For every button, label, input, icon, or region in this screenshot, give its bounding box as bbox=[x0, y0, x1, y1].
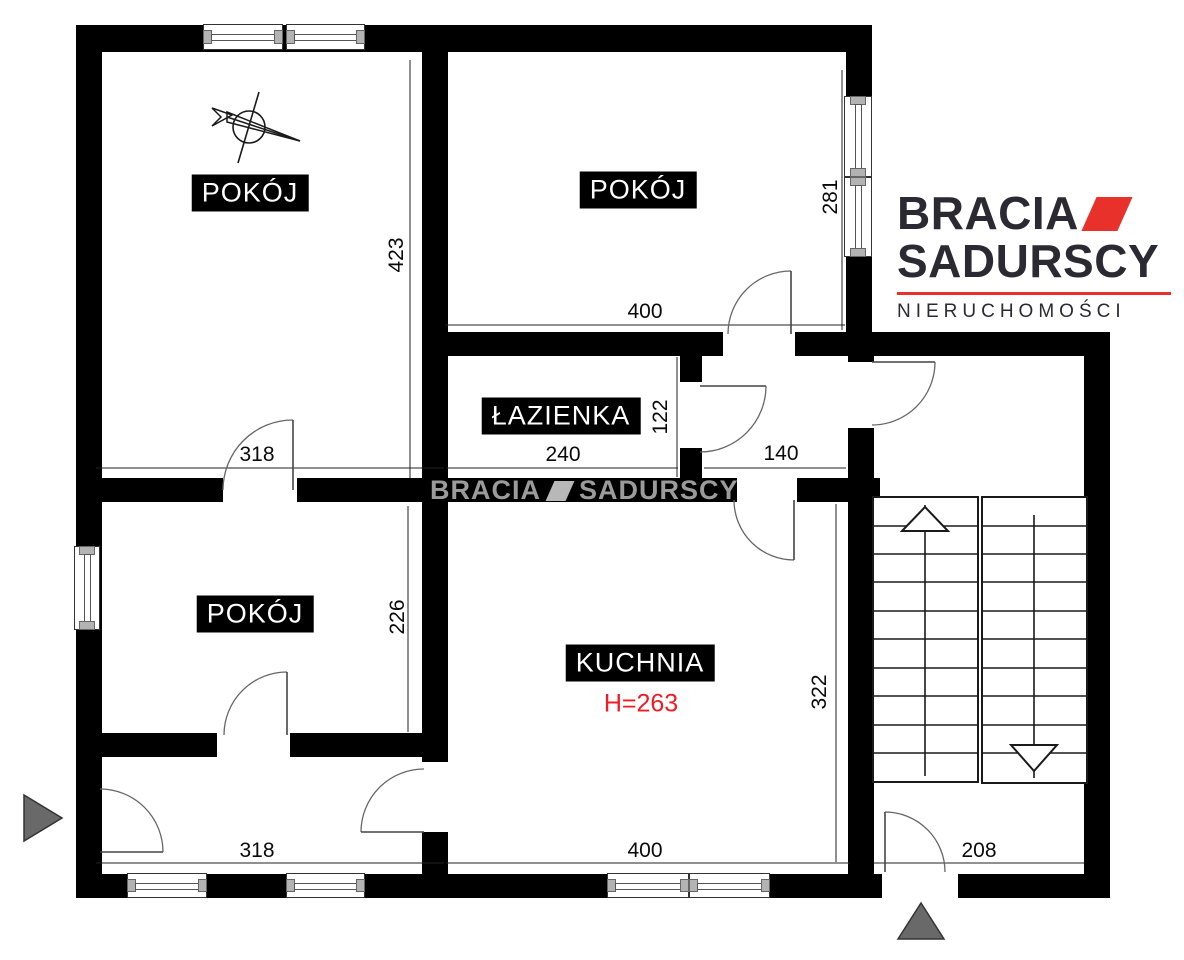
logo-red-parallelogram bbox=[1081, 197, 1132, 231]
staircase bbox=[873, 497, 1087, 783]
dim-pokoj3-height: 226 bbox=[386, 599, 410, 634]
logo-word1: BRACIA bbox=[897, 190, 1079, 238]
watermark-word1: BRACIA bbox=[430, 475, 541, 506]
dim-kuchnia-height: 322 bbox=[808, 674, 832, 709]
door-arc bbox=[734, 500, 794, 560]
dim-lazienka-width: 240 bbox=[545, 443, 580, 467]
logo-word2: SADURSCY bbox=[897, 238, 1159, 286]
door-arc bbox=[224, 672, 287, 735]
ceiling-height-note: H=263 bbox=[604, 690, 678, 719]
room-label-pokoj3: POKÓJ bbox=[197, 596, 314, 633]
door-arc bbox=[100, 789, 163, 852]
dim-korytarz-width: 140 bbox=[763, 442, 798, 466]
watermark-word2: SADURSCY bbox=[579, 475, 739, 506]
doors bbox=[100, 271, 945, 872]
dim-pokoj1-width: 318 bbox=[239, 443, 274, 467]
dim-przedpokoj-width: 318 bbox=[239, 839, 274, 863]
floor-plan: POKÓJ POKÓJ ŁAZIENKA POKÓJ KUCHNIA H=263… bbox=[0, 0, 1184, 960]
watermark: BRACIA SADURSCY bbox=[430, 475, 739, 506]
door-arc bbox=[361, 769, 424, 832]
room-label-lazienka: ŁAZIENKA bbox=[482, 398, 641, 435]
dim-pokoj2-width: 400 bbox=[627, 300, 662, 324]
north-arrow-icon bbox=[212, 92, 300, 163]
dim-pokoj1-height: 423 bbox=[385, 237, 409, 272]
room-label-pokoj2: POKÓJ bbox=[580, 172, 697, 209]
door-arc bbox=[700, 386, 766, 452]
watermark-parallelogram bbox=[546, 481, 575, 501]
logo-red-rule bbox=[897, 292, 1171, 295]
dim-wejscie-width: 208 bbox=[961, 839, 996, 863]
agency-logo: BRACIA SADURSCY NIERUCHOMOŚCI bbox=[897, 190, 1171, 323]
entrance-marker-bottom bbox=[898, 903, 944, 939]
room-label-kuchnia: KUCHNIA bbox=[566, 645, 715, 682]
dim-kuchnia-width: 400 bbox=[627, 839, 662, 863]
dim-lazienka-height: 122 bbox=[649, 399, 673, 434]
dim-pokoj2-height: 281 bbox=[819, 179, 843, 214]
room-label-pokoj1: POKÓJ bbox=[192, 175, 309, 212]
entrance-marker-left bbox=[24, 795, 62, 841]
door-arc bbox=[872, 362, 935, 425]
logo-tagline: NIERUCHOMOŚCI bbox=[897, 301, 1171, 323]
